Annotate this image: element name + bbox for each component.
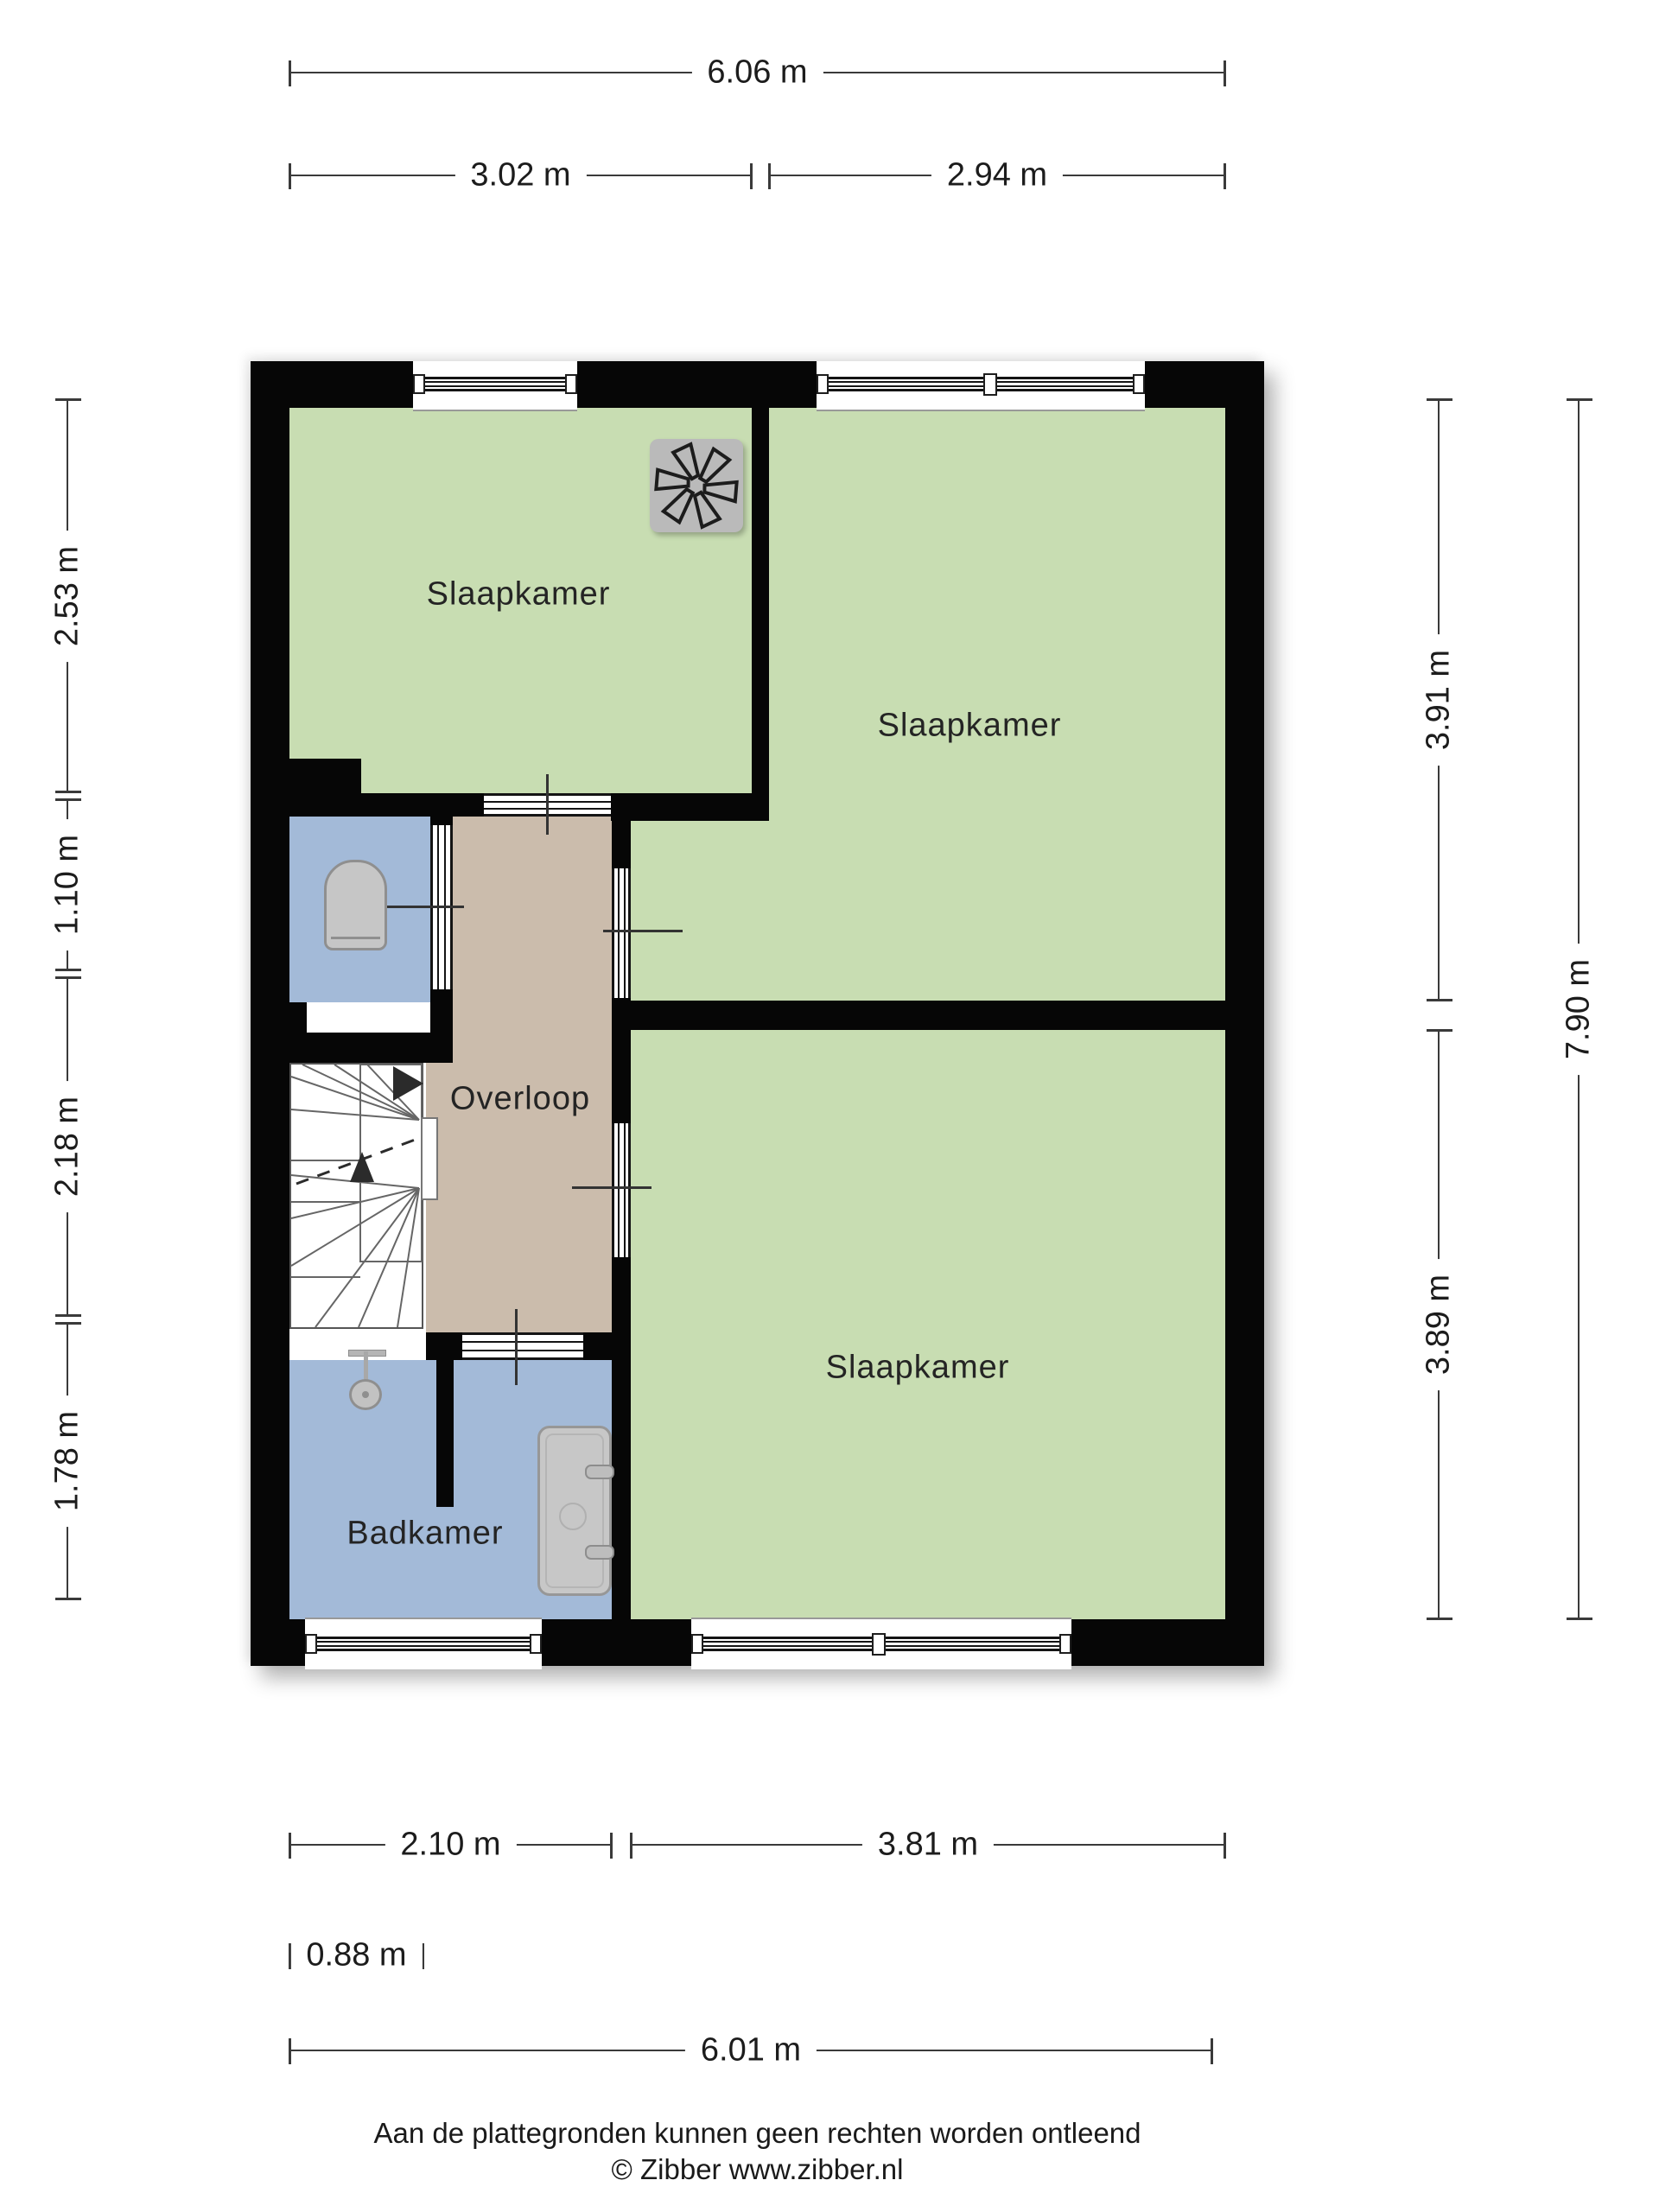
dim-tick bbox=[55, 791, 81, 793]
dim-top-total: 6.06 m bbox=[289, 72, 1225, 73]
label-bathroom: Badkamer bbox=[346, 1516, 503, 1553]
dim-label: 0.88 m bbox=[290, 1937, 422, 1974]
dim-left-upper: 2.53 m bbox=[67, 399, 68, 792]
dim-tick bbox=[750, 163, 753, 189]
dim-bottom-bathroom: 2.10 m bbox=[289, 1844, 612, 1846]
shower-head bbox=[349, 1379, 382, 1410]
footer-disclaimer: Aan de plattegronden kunnen geen rechten… bbox=[251, 2115, 1264, 2152]
dim-label: 6.06 m bbox=[691, 54, 823, 92]
dim-tick bbox=[1567, 1618, 1592, 1620]
window-glass bbox=[314, 1637, 533, 1651]
tap-icon bbox=[585, 1465, 614, 1479]
dim-tick bbox=[55, 798, 81, 801]
label-landing: Overloop bbox=[450, 1081, 590, 1118]
door-tick bbox=[385, 906, 464, 908]
door-bedroomBR bbox=[612, 1123, 631, 1257]
dim-label: 6.01 m bbox=[685, 2032, 817, 2069]
ventilation-fan-icon bbox=[650, 439, 743, 532]
window-mullion bbox=[983, 373, 997, 396]
dim-tick bbox=[289, 163, 291, 189]
label-bedroom-top-left: Slaapkamer bbox=[427, 576, 611, 613]
footer: Aan de plattegronden kunnen geen rechten… bbox=[251, 2115, 1264, 2188]
window-frame bbox=[530, 1634, 542, 1654]
window-frame bbox=[817, 374, 829, 394]
wall-exterior-left bbox=[251, 361, 289, 1666]
label-bedroom-bottom-right: Slaapkamer bbox=[826, 1350, 1010, 1387]
dim-tick bbox=[289, 60, 291, 86]
window-bedroom-bottom bbox=[691, 1618, 1071, 1669]
dim-label: 1.78 m bbox=[49, 1395, 86, 1527]
window-frame bbox=[1059, 1634, 1071, 1654]
dim-right-upper: 3.91 m bbox=[1438, 399, 1440, 1001]
door-tick bbox=[603, 930, 683, 932]
wall-toilet-right-bottom bbox=[430, 989, 453, 1063]
dim-tick bbox=[55, 1598, 81, 1600]
dim-tick bbox=[55, 398, 81, 401]
dim-label: 3.81 m bbox=[862, 1827, 994, 1864]
dim-bottom-total: 6.01 m bbox=[289, 2050, 1212, 2051]
wall-bedroomTL-bottom-left bbox=[289, 793, 484, 817]
dim-tick bbox=[55, 1314, 81, 1317]
dim-tick bbox=[289, 1833, 291, 1859]
dim-tick bbox=[1224, 1833, 1226, 1859]
floorplan-page: 6.06 m 3.02 m 2.94 m 2.53 m 1.10 m 2.18 … bbox=[0, 0, 1659, 2212]
dim-tick bbox=[1427, 999, 1452, 1001]
door-tick bbox=[572, 1186, 652, 1189]
dim-tick bbox=[630, 1833, 632, 1859]
wall-toilet-bottom bbox=[289, 1033, 430, 1063]
room-bedroom-top-right bbox=[769, 408, 1225, 1001]
dim-label: 7.90 m bbox=[1560, 944, 1598, 1075]
dim-tick bbox=[1427, 1029, 1452, 1032]
window-glass bbox=[422, 377, 569, 391]
stairs-opening bbox=[421, 1117, 438, 1200]
dim-tick bbox=[1211, 2038, 1213, 2064]
wall-toilet-right-top bbox=[430, 817, 453, 825]
label-bedroom-top-right: Slaapkamer bbox=[878, 708, 1062, 745]
dim-label: 1.10 m bbox=[49, 819, 86, 950]
toilet-door-gap bbox=[307, 1002, 430, 1033]
door-bedroomTR bbox=[612, 868, 631, 998]
dim-bottom-bedroom: 3.81 m bbox=[631, 1844, 1225, 1846]
dim-label: 2.94 m bbox=[931, 157, 1063, 194]
wall-bathroom-right bbox=[612, 1360, 631, 1619]
window-glass bbox=[825, 377, 1136, 391]
dim-stairs-width: 0.88 m bbox=[289, 1955, 423, 1956]
door-bathroom bbox=[462, 1332, 583, 1360]
dim-left-stairs: 2.18 m bbox=[67, 977, 68, 1316]
door-tick bbox=[515, 1309, 518, 1385]
dim-tick bbox=[1427, 398, 1452, 401]
toilet-seat-line bbox=[331, 937, 380, 939]
dim-label: 2.53 m bbox=[49, 530, 86, 661]
wall-bedrooms-right-divider bbox=[612, 1001, 1225, 1030]
wall-bedroomTL-bottom-right bbox=[611, 793, 769, 821]
washbasin-drain bbox=[559, 1503, 587, 1530]
window-top-left bbox=[413, 361, 577, 411]
footer-copyright: © Zibber www.zibber.nl bbox=[251, 2152, 1264, 2188]
dim-tick bbox=[1567, 398, 1592, 401]
shower-head-dot bbox=[362, 1391, 369, 1398]
dim-label: 3.89 m bbox=[1421, 1259, 1458, 1390]
room-bedroom-bottom-right bbox=[631, 1030, 1225, 1619]
dim-top-right: 2.94 m bbox=[769, 175, 1225, 176]
window-frame bbox=[565, 374, 577, 394]
window-frame bbox=[305, 1634, 317, 1654]
dim-tick bbox=[55, 976, 81, 979]
room-bedroom-top-right-extension bbox=[631, 821, 769, 1001]
wall-toilet-step bbox=[289, 1002, 307, 1033]
dim-label: 3.91 m bbox=[1421, 634, 1458, 766]
dim-tick bbox=[1224, 60, 1226, 86]
dim-label: 3.02 m bbox=[454, 157, 586, 194]
floorplan: Slaapkamer Slaapkamer Slaapkamer Overloo… bbox=[251, 361, 1264, 1666]
window-top-right bbox=[817, 361, 1145, 411]
dim-tick bbox=[289, 2038, 291, 2064]
dim-tick bbox=[1427, 1618, 1452, 1620]
door-tick bbox=[546, 774, 549, 835]
dim-tick bbox=[55, 1322, 81, 1325]
wall-bathroom-stub bbox=[436, 1360, 454, 1507]
dim-tick bbox=[610, 1833, 613, 1859]
dim-tick bbox=[768, 163, 771, 189]
window-frame bbox=[691, 1634, 703, 1654]
dim-tick bbox=[1224, 163, 1226, 189]
dim-label: 2.18 m bbox=[49, 1081, 86, 1212]
dim-right-total: 7.90 m bbox=[1578, 399, 1580, 1619]
window-frame bbox=[413, 374, 425, 394]
dim-right-lower: 3.89 m bbox=[1438, 1030, 1440, 1619]
wall-bathroom-top-right bbox=[583, 1332, 612, 1360]
wall-bathroom-top-left bbox=[426, 1332, 462, 1360]
wall-landing-right-3 bbox=[612, 1257, 631, 1360]
stairs-icon bbox=[289, 1063, 423, 1329]
dim-left-bathroom: 1.78 m bbox=[67, 1323, 68, 1599]
tap-icon bbox=[585, 1545, 614, 1560]
window-frame bbox=[1133, 374, 1145, 394]
dim-label: 2.10 m bbox=[385, 1827, 516, 1864]
toilet-icon bbox=[324, 860, 387, 950]
wall-exterior-right bbox=[1225, 361, 1264, 1666]
dim-top-left: 3.02 m bbox=[289, 175, 752, 176]
window-bathroom bbox=[305, 1618, 542, 1669]
washbasin-icon bbox=[537, 1426, 612, 1596]
dim-left-toilet: 1.10 m bbox=[67, 799, 68, 970]
wall-bedroom-divider bbox=[752, 408, 769, 817]
dim-tick bbox=[55, 969, 81, 971]
wall-landing-right-1 bbox=[612, 812, 631, 868]
room-landing-upper bbox=[453, 817, 612, 1063]
window-mullion bbox=[872, 1633, 886, 1656]
